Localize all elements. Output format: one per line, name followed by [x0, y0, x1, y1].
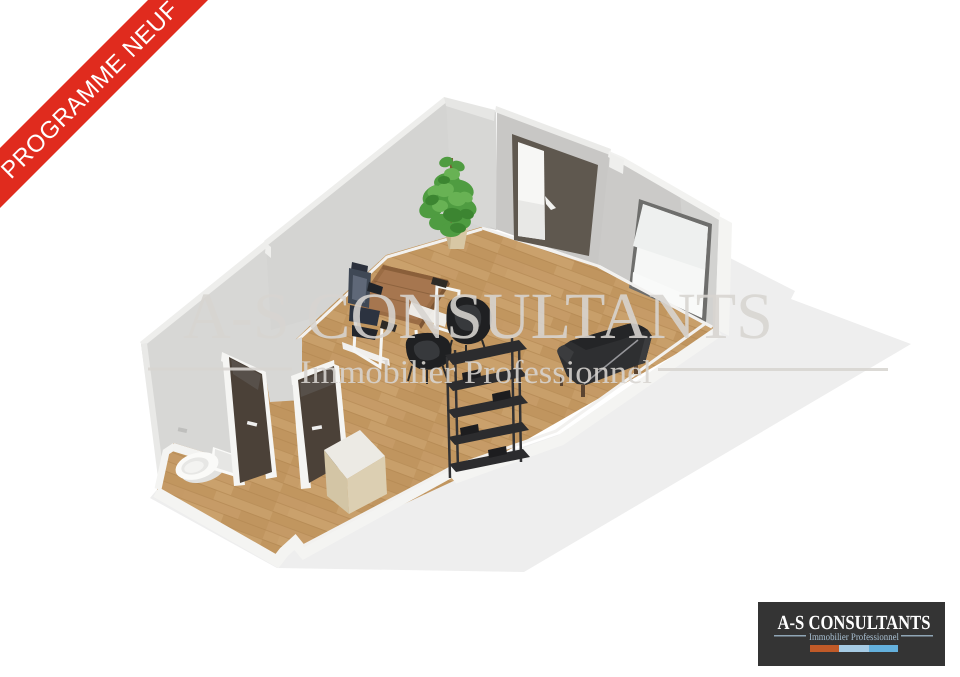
svg-text:A-S CONSULTANTS: A-S CONSULTANTS: [183, 280, 773, 353]
svg-text:A-S CONSULTANTS: A-S CONSULTANTS: [778, 612, 931, 634]
svg-text:Immobilier Professionnel: Immobilier Professionnel: [809, 632, 899, 643]
svg-text:Immobilier Professionnel: Immobilier Professionnel: [300, 355, 652, 391]
